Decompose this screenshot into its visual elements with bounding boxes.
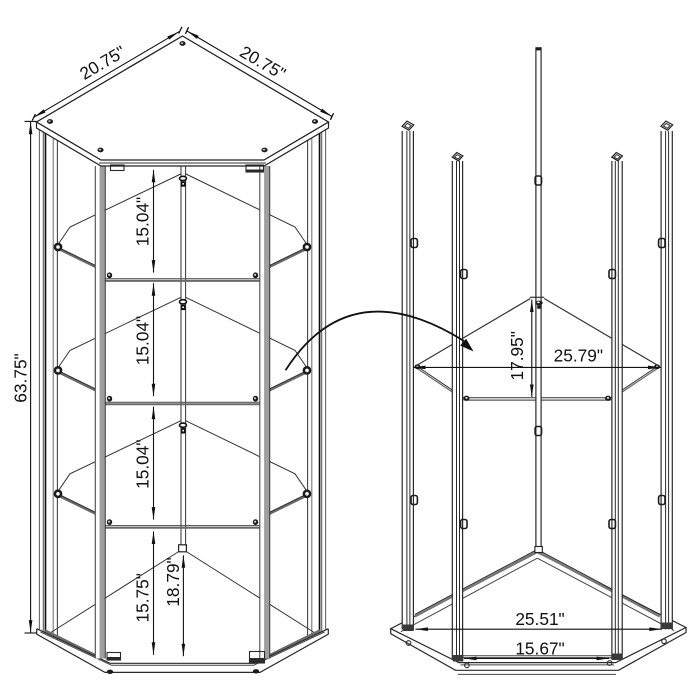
svg-text:15.75": 15.75" xyxy=(133,573,153,622)
svg-text:15.04": 15.04" xyxy=(133,197,153,246)
svg-text:18.79": 18.79" xyxy=(163,557,183,606)
svg-text:25.79": 25.79" xyxy=(554,346,603,366)
svg-text:15.04": 15.04" xyxy=(133,440,153,489)
svg-text:17.95": 17.95" xyxy=(507,331,527,380)
svg-text:63.75": 63.75" xyxy=(10,353,30,402)
svg-text:15.04": 15.04" xyxy=(133,316,153,365)
svg-text:25.51": 25.51" xyxy=(515,609,564,629)
svg-text:15.67": 15.67" xyxy=(515,639,564,659)
